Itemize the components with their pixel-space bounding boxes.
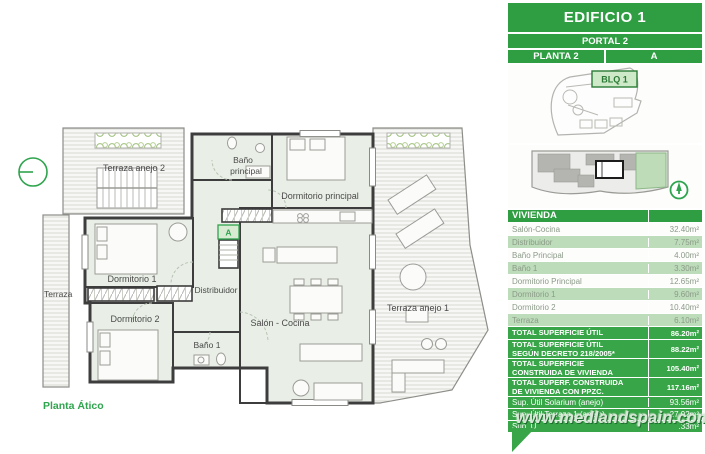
total-row: TOTAL SUPERF. CONSTRUIDA DE VIVIENDA CON… <box>508 378 702 397</box>
label-bano-1: Baño 1 <box>194 340 221 350</box>
interior-stairs: A <box>218 225 239 268</box>
panel-tail <box>512 428 535 452</box>
total-row: TOTAL SUPERFICIE ÚTIL SEGÚN DECRETO 218/… <box>508 340 702 359</box>
label-bano-principal-1: Baño <box>233 155 253 165</box>
table-header-row: VIVIENDA <box>508 210 702 223</box>
table-row: Terraza6.10m² <box>508 314 702 327</box>
block-label: BLQ 1 <box>601 75 628 85</box>
plan-title: Planta Ático <box>43 399 104 412</box>
table-row: Dormitorio 210.40m² <box>508 301 702 314</box>
watermark: www.medlandspain.com <box>516 409 705 428</box>
section-marker-icon <box>19 158 47 186</box>
key-plan <box>508 145 702 210</box>
site-plan: BLQ 1 <box>508 65 702 145</box>
floor-plan: A <box>0 0 505 454</box>
table-row: Dormitorio Principal12.65m² <box>508 275 702 288</box>
label-terraza-anejo-1: Terraza anejo 1 <box>387 303 449 313</box>
label-terraza-anejo-2: Terraza anejo 2 <box>103 163 165 173</box>
table-row: Salón-Cocina32.40m² <box>508 223 702 236</box>
unit-label: A <box>604 50 702 63</box>
label-bano-principal-2: principal <box>230 166 262 176</box>
annex-row: Sup. Útil Solarium (anejo)93.56m² <box>508 397 702 409</box>
table-row: Baño Principal4.00m² <box>508 249 702 262</box>
label-dormitorio-1: Dormitorio 1 <box>107 274 156 284</box>
planter <box>387 133 450 148</box>
planter <box>95 133 161 148</box>
selected-unit <box>596 161 623 178</box>
label-dormitorio-2: Dormitorio 2 <box>110 314 159 324</box>
total-row: TOTAL SUPERFICIE ÚTIL86.20m² <box>508 327 702 340</box>
table-row: Baño 13.30m² <box>508 262 702 275</box>
highlighted-unit-area <box>636 153 666 189</box>
table-header: VIVIENDA <box>508 210 648 222</box>
table-row: Distribuidor7.75m² <box>508 236 702 249</box>
north-arrow-icon <box>671 182 688 199</box>
table-row: Dormitorio 19.60m² <box>508 288 702 301</box>
stair-marker-label: A <box>225 228 231 238</box>
planta-label: PLANTA 2 <box>508 50 604 63</box>
total-row: TOTAL SUPERFICIE CONSTRUIDA DE VIVIENDA1… <box>508 359 702 378</box>
label-terraza: Terraza <box>44 289 73 299</box>
label-salon-cocina: Salón - Cocina <box>250 318 309 328</box>
unit-info-panel: EDIFICIO 1 PORTAL 2 PLANTA 2 A BLQ 1 <box>508 3 702 433</box>
building-title: EDIFICIO 1 <box>508 3 702 34</box>
label-distribuidor: Distribuidor <box>195 285 238 295</box>
portal-label: PORTAL 2 <box>508 34 702 50</box>
label-dormitorio-principal: Dormitorio principal <box>281 191 359 201</box>
exterior-stairs <box>97 168 157 208</box>
floor-unit-bar: PLANTA 2 A <box>508 50 702 65</box>
surfaces-table: VIVIENDA Salón-Cocina32.40m² Distribuido… <box>508 210 702 433</box>
